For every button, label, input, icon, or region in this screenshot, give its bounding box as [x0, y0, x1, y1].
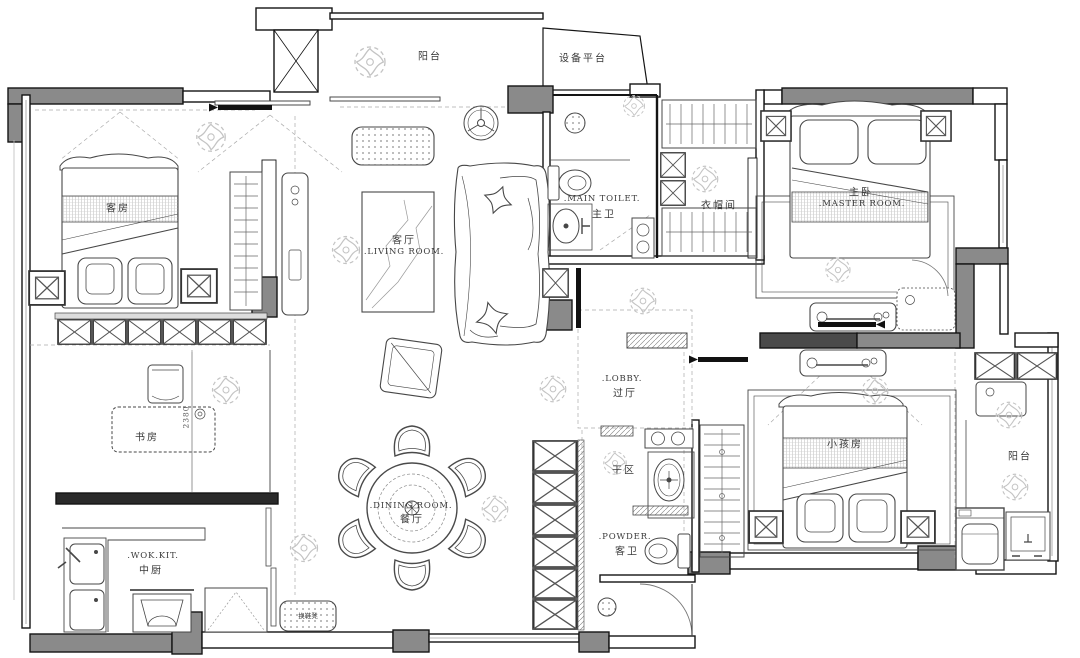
kids-room-furniture: [748, 350, 956, 550]
study-furniture: [112, 365, 215, 452]
entry-door-swing: [640, 584, 692, 636]
kitchen-fixtures: [58, 508, 276, 632]
bench: [280, 601, 336, 631]
pillow: [868, 120, 926, 164]
window-bench: [897, 288, 955, 330]
lobby-fixtures: [533, 333, 694, 636]
fridge: [205, 588, 267, 632]
master-room-furniture: [756, 101, 955, 331]
ceiling-fan-icon: [464, 106, 498, 140]
tall-cabinet: [533, 440, 584, 630]
rug: [362, 192, 434, 312]
sliding-door: [576, 268, 581, 328]
hall-closet: [700, 425, 744, 557]
cloakroom-wardrobe: [661, 100, 756, 256]
floor-plan: 阳台 设备平台 客房 客厅 .LIVING ROOM. .MAIN TOILET…: [0, 0, 1080, 658]
right-balcony-fixtures: [956, 353, 1057, 570]
shower-drain: [565, 113, 585, 133]
sofa: [454, 163, 549, 345]
balcony-sink: [1006, 512, 1050, 560]
washing-machine: [956, 508, 1004, 570]
doormat: [598, 598, 616, 616]
toilet: [548, 166, 591, 200]
dining-set: [332, 426, 492, 590]
guest-room-furniture: [29, 154, 267, 344]
washer-stack: [632, 218, 654, 258]
kids-door: [689, 356, 748, 364]
ottoman: [380, 337, 443, 398]
tv-console: [800, 350, 886, 376]
powder-toilet: [645, 534, 690, 568]
double-basin-counter: [645, 429, 693, 448]
pillow: [800, 120, 858, 164]
kitchen-sink: [70, 544, 104, 584]
wash-basin: [548, 204, 592, 250]
floor-plan-drawing: [0, 0, 1080, 658]
